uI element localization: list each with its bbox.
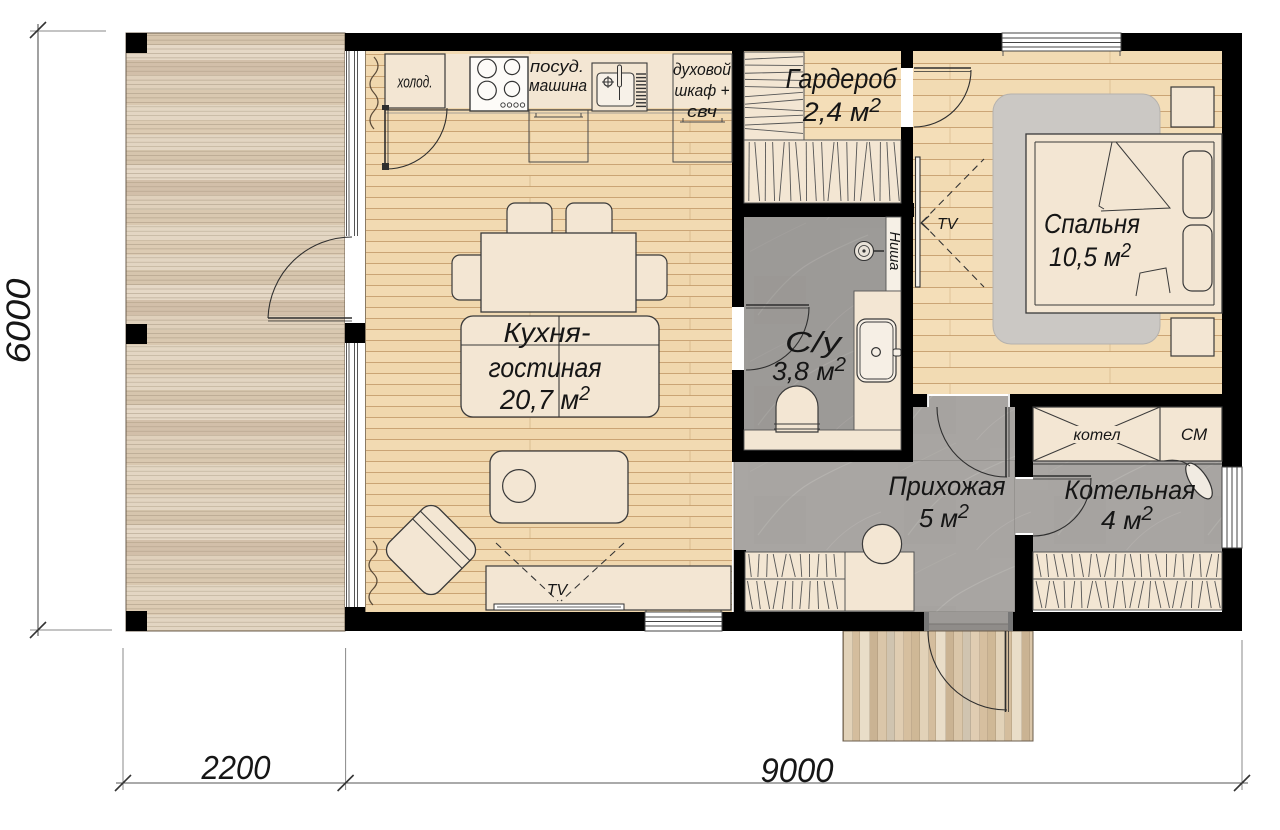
svg-text:TV: TV bbox=[547, 582, 569, 599]
svg-text:10,5 м2: 10,5 м2 bbox=[1049, 240, 1131, 272]
svg-text:шкаф +: шкаф + bbox=[675, 82, 730, 100]
svg-text:машина: машина bbox=[529, 76, 587, 95]
svg-text:духовой: духовой bbox=[673, 61, 731, 79]
svg-text:20,7 м2: 20,7 м2 bbox=[499, 383, 590, 415]
svg-text:TV: TV bbox=[937, 216, 959, 233]
svg-text:Спальня: Спальня bbox=[1044, 208, 1140, 239]
svg-text:котел: котел bbox=[1074, 427, 1121, 444]
svg-text:холод.: холод. bbox=[397, 73, 433, 92]
svg-text:Ниша: Ниша bbox=[886, 232, 902, 271]
svg-text:Прихожая: Прихожая bbox=[889, 471, 1006, 501]
svg-text:посуд.: посуд. bbox=[530, 57, 584, 76]
svg-text:2200: 2200 bbox=[201, 749, 272, 786]
svg-text:2,4 м2: 2,4 м2 bbox=[802, 95, 881, 127]
svg-text:9000: 9000 bbox=[761, 752, 834, 790]
svg-text:СМ: СМ bbox=[1181, 425, 1208, 444]
svg-text:Гардероб: Гардероб bbox=[786, 63, 898, 94]
svg-text:свч: свч bbox=[687, 103, 718, 121]
svg-text:6000: 6000 bbox=[0, 278, 38, 363]
svg-text:гостиная: гостиная bbox=[489, 352, 602, 383]
svg-text:Котельная: Котельная bbox=[1065, 475, 1196, 505]
svg-text:Кухня-: Кухня- bbox=[504, 317, 591, 348]
